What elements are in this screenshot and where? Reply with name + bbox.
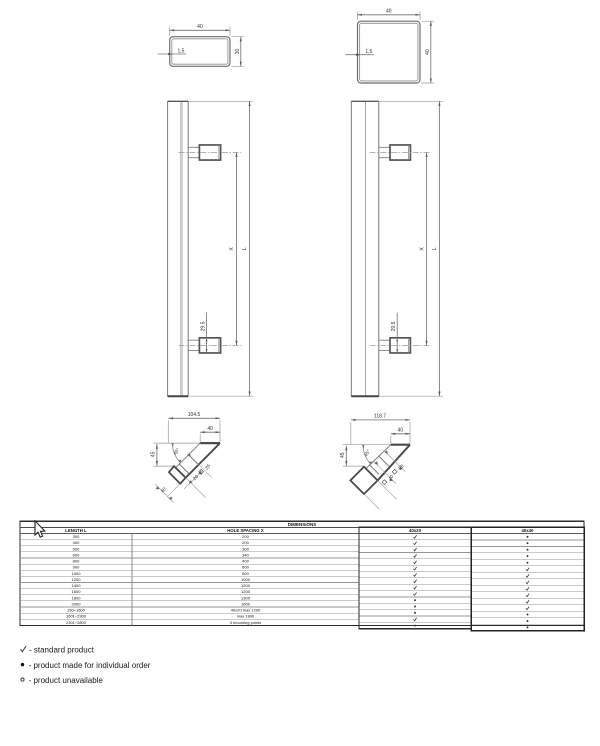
svg-text:40: 40 xyxy=(197,24,203,30)
svg-text:- product unavailable: - product unavailable xyxy=(29,676,104,685)
svg-text:- product made for individual: - product made for individual order xyxy=(29,661,151,670)
svg-text:600: 600 xyxy=(73,552,80,557)
svg-text:150÷1600: 150÷1600 xyxy=(67,608,86,613)
svg-text:1200: 1200 xyxy=(241,589,251,594)
svg-text:1000: 1000 xyxy=(72,571,82,576)
svg-text:1400: 1400 xyxy=(72,583,82,588)
svg-text:40: 40 xyxy=(207,426,213,432)
svg-text:104.5: 104.5 xyxy=(188,412,201,418)
svg-text:45: 45 xyxy=(340,452,346,458)
svg-text:1,5: 1,5 xyxy=(365,49,372,55)
svg-text:600: 600 xyxy=(242,565,249,570)
svg-text:400: 400 xyxy=(73,540,80,545)
svg-text:30: 30 xyxy=(235,49,241,55)
svg-text:1600: 1600 xyxy=(241,601,251,606)
svg-text:600: 600 xyxy=(242,571,249,576)
svg-text:29.5: 29.5 xyxy=(200,321,206,331)
svg-text:3 mounting points: 3 mounting points xyxy=(230,620,262,625)
svg-text:HOLE SPACING X: HOLE SPACING X xyxy=(227,528,264,533)
svg-text:2000: 2000 xyxy=(72,601,82,606)
svg-text:400: 400 xyxy=(242,559,249,564)
svg-text:- standard product: - standard product xyxy=(29,646,95,655)
svg-text:800: 800 xyxy=(73,559,80,564)
svg-text:40: 40 xyxy=(425,49,431,55)
svg-text:2301÷2800: 2301÷2800 xyxy=(66,620,87,625)
svg-text:40: 40 xyxy=(386,9,392,15)
svg-text:1300: 1300 xyxy=(241,595,251,600)
svg-text:200: 200 xyxy=(242,534,249,539)
svg-text:900: 900 xyxy=(73,565,80,570)
svg-text:200: 200 xyxy=(242,540,249,545)
svg-text:500: 500 xyxy=(73,546,80,551)
svg-text:1000: 1000 xyxy=(241,577,251,582)
svg-text:1200: 1200 xyxy=(241,583,251,588)
svg-text:40x20: 40x20 xyxy=(409,528,422,533)
svg-text:DIMENSIONS: DIMENSIONS xyxy=(288,522,317,527)
svg-text:max 1800: max 1800 xyxy=(237,614,255,619)
svg-text:300: 300 xyxy=(73,534,80,539)
svg-text:40: 40 xyxy=(398,428,404,434)
svg-text:118.7: 118.7 xyxy=(374,414,386,420)
svg-text:1601÷2300: 1601÷2300 xyxy=(66,614,87,619)
svg-text:1200: 1200 xyxy=(72,577,82,582)
svg-text:40x40: 40x40 xyxy=(522,528,535,533)
svg-text:40x20 max 1200: 40x20 max 1200 xyxy=(231,608,261,613)
svg-text:1,5: 1,5 xyxy=(178,48,185,54)
svg-text:340: 340 xyxy=(242,552,249,557)
svg-text:45: 45 xyxy=(151,451,157,457)
svg-text:1800: 1800 xyxy=(72,595,82,600)
svg-text:LENGTH L: LENGTH L xyxy=(65,528,87,533)
svg-text:300: 300 xyxy=(242,546,249,551)
svg-text:L: L xyxy=(242,247,248,250)
svg-text:1600: 1600 xyxy=(72,589,82,594)
svg-text:L: L xyxy=(432,247,438,250)
svg-text:29.5: 29.5 xyxy=(391,321,397,331)
